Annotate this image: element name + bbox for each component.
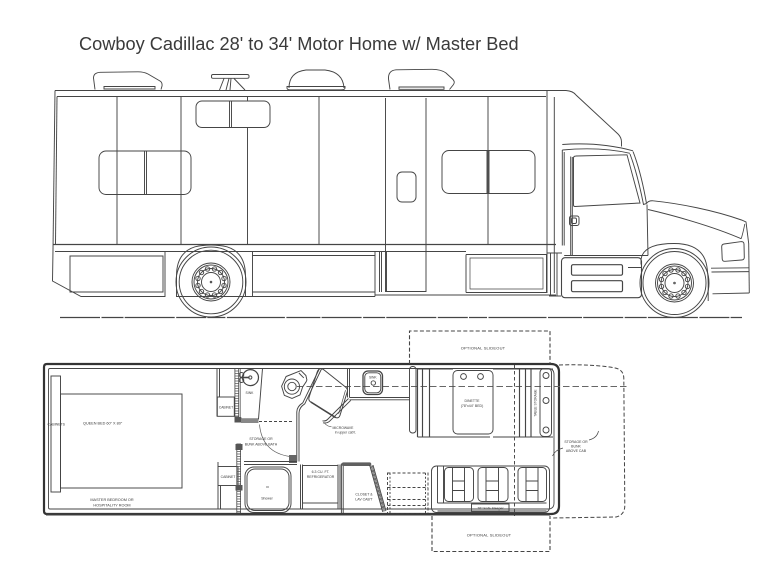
svg-text:Shower: Shower (261, 497, 273, 501)
svg-text:DINETTE: DINETTE (465, 399, 481, 403)
svg-text:BUNK ABOVE BATH: BUNK ABOVE BATH (245, 443, 278, 447)
svg-text:MASTER BEDROOM OR: MASTER BEDROOM OR (90, 498, 134, 502)
svg-text:REFRIGERATOR: REFRIGERATOR (307, 475, 335, 479)
svg-text:STORAGE OR: STORAGE OR (249, 437, 273, 441)
svg-text:6.3 CU. FT.: 6.3 CU. FT. (312, 470, 330, 474)
svg-text:HOSPITALITY ROOM: HOSPITALITY ROOM (93, 504, 130, 508)
svg-text:OPTIONAL SLIDEOUT: OPTIONAL SLIDEOUT (461, 346, 506, 351)
svg-text:LAV CAB'T: LAV CAB'T (355, 498, 373, 502)
svg-text:CLOSET &: CLOSET & (355, 493, 373, 497)
svg-text:TABLE STORAGE: TABLE STORAGE (534, 389, 538, 417)
svg-text:CABINET: CABINET (219, 405, 233, 409)
svg-text:CABINETS: CABINETS (48, 423, 66, 427)
svg-text:ABOVE CAB: ABOVE CAB (566, 449, 587, 453)
svg-text:BUNK: BUNK (571, 445, 581, 449)
svg-text:76" Sofa Sleeper: 76" Sofa Sleeper (477, 507, 504, 511)
svg-text:SINK: SINK (246, 391, 255, 395)
svg-text:QUEEN BED 60" X 80": QUEEN BED 60" X 80" (83, 422, 123, 426)
svg-text:in upper cab't.: in upper cab't. (335, 430, 356, 434)
svg-text:CABINET: CABINET (221, 475, 236, 479)
svg-text:MICROWAVE: MICROWAVE (333, 426, 355, 430)
svg-text:SINK: SINK (369, 376, 377, 380)
svg-text:(78"x44" BED): (78"x44" BED) (461, 404, 484, 408)
svg-text:OPTIONAL SLIDEOUT: OPTIONAL SLIDEOUT (467, 533, 512, 538)
svg-text:STORAGE OR: STORAGE OR (564, 440, 588, 444)
svg-text:Cowboy Cadillac 28' to 34' Mot: Cowboy Cadillac 28' to 34' Motor Home w/… (79, 34, 519, 54)
